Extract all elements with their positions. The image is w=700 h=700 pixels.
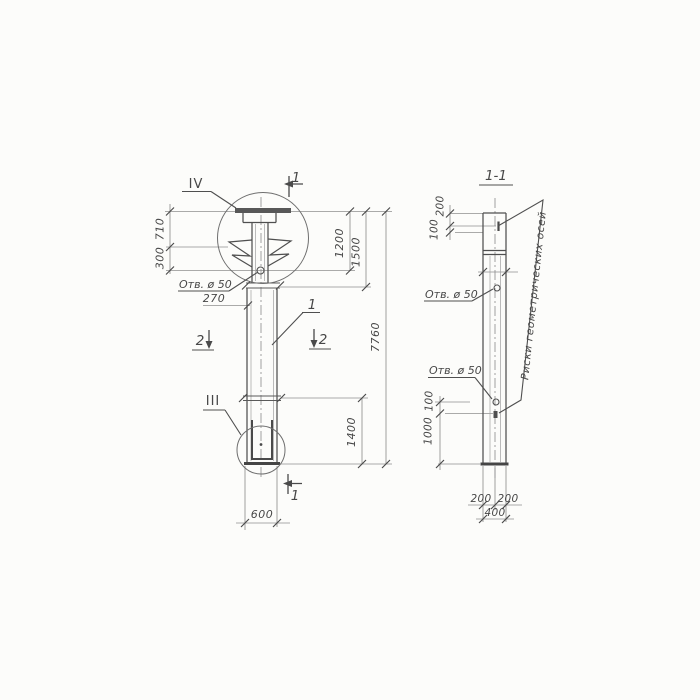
dim-300: 300	[154, 247, 167, 270]
top-plate	[235, 208, 291, 213]
dim-1000: 1000	[423, 417, 435, 445]
hole-section-lower	[493, 399, 499, 405]
section-cut-right-label: 2	[319, 332, 328, 348]
elevation-view: IV III 1 1 2 2 1 Отв. ø 50 710 300 270 1…	[154, 170, 393, 530]
dim-710: 710	[154, 218, 167, 241]
dim-100-top: 100	[429, 219, 441, 240]
dim-1500: 1500	[350, 237, 363, 267]
dim-200-left: 200	[471, 493, 492, 505]
cut-arrow-right2	[311, 340, 318, 348]
section-cut-top-label: 1	[292, 170, 301, 186]
axes-note: Риски геометрических осей	[519, 211, 549, 381]
section-cut-left-label: 2	[196, 333, 205, 349]
dim-1200: 1200	[333, 228, 346, 258]
axis-mark-bottom	[494, 411, 498, 418]
section-inner-lines	[490, 256, 501, 462]
cut-arrow-left2	[206, 341, 213, 349]
hole-callout-elevation: Отв. ø 50	[179, 278, 232, 291]
dim-400: 400	[485, 507, 506, 519]
dim-200-top: 200	[435, 196, 447, 217]
section-outline	[483, 213, 506, 464]
technical-drawing: IV III 1 1 2 2 1 Отв. ø 50 710 300 270 1…	[0, 0, 700, 700]
part-number-label: 1	[308, 297, 317, 313]
dim-7760: 7760	[369, 322, 382, 352]
label-underlines-leaders	[178, 192, 331, 436]
section-title: 1-1	[485, 168, 507, 184]
detail-label-IV: IV	[189, 177, 204, 192]
hole-callout-section-upper: Отв. ø 50	[425, 288, 478, 301]
section-cut-lines	[209, 176, 314, 494]
drawing-sheet: IV III 1 1 2 2 1 Отв. ø 50 710 300 270 1…	[0, 0, 700, 700]
detail-label-III: III	[206, 394, 221, 409]
dim-1400: 1400	[345, 417, 358, 447]
corbel-break-left	[229, 240, 252, 267]
hole-callout-section-lower: Отв. ø 50	[429, 364, 482, 377]
dim-270: 270	[203, 292, 226, 305]
column-inner-lines	[251, 224, 274, 461]
corbel-break-right	[268, 239, 291, 266]
section-cut-bottom-label: 1	[291, 488, 300, 504]
dim-600: 600	[251, 508, 274, 521]
bottom-center-dot	[260, 443, 263, 446]
dim-100-lower: 100	[424, 391, 436, 412]
dim-200-right: 200	[498, 493, 519, 505]
detail-circle-IV	[218, 193, 309, 284]
section-view: 1-1 Отв. ø 50 Отв. ø 50 Риски геометриче…	[423, 168, 549, 523]
